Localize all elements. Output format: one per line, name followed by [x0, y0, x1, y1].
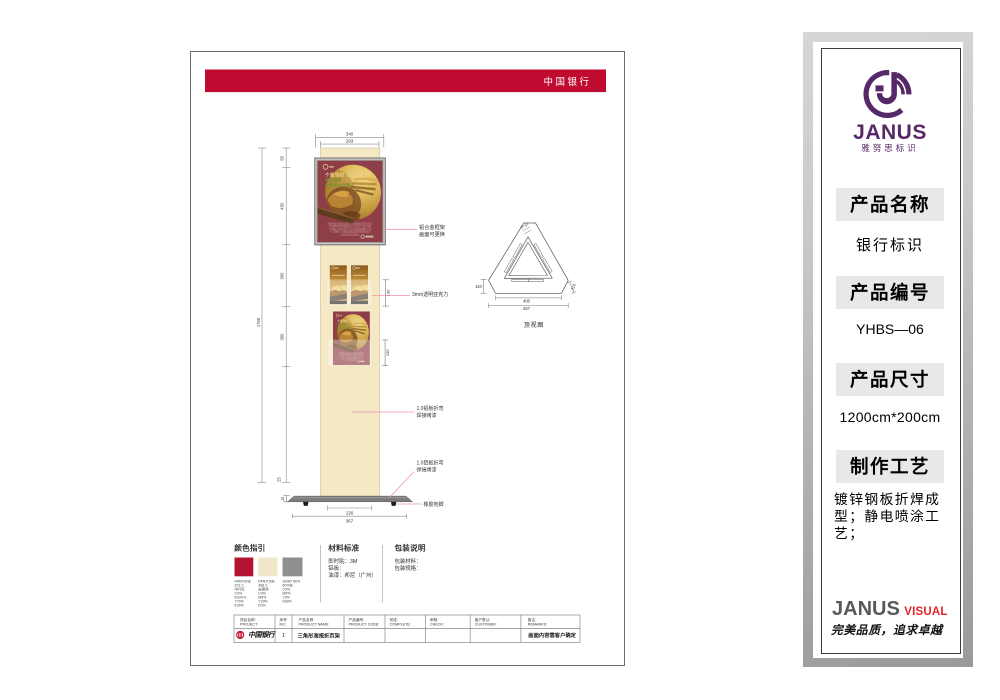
svg-text:材料标准: 材料标准: [327, 542, 359, 552]
svg-text:367: 367: [346, 518, 354, 523]
svg-text:1: 1: [282, 632, 285, 638]
svg-text:367: 367: [523, 306, 531, 311]
svg-text:中国银行: 中国银行: [543, 76, 591, 88]
svg-text:包装说明: 包装说明: [395, 542, 426, 552]
svg-text:300: 300: [280, 332, 285, 340]
svg-text:CHECK:: CHECK:: [430, 622, 444, 626]
svg-text:橡胶地脚: 橡胶地脚: [424, 500, 444, 507]
svg-text:1760: 1760: [256, 317, 261, 327]
svg-text:焊接烤漆: 焊接烤漆: [417, 412, 437, 419]
svg-text:包装规格：: 包装规格：: [395, 564, 422, 572]
svg-text:包装材料：: 包装材料：: [395, 557, 422, 565]
svg-text:焊接烤漆: 焊接烤漆: [417, 466, 437, 473]
svg-text:25: 25: [277, 476, 282, 481]
svg-text:300: 300: [280, 271, 285, 279]
svg-text:110: 110: [475, 283, 482, 288]
svg-text:画面内容需客户确定: 画面内容需客户确定: [528, 631, 576, 639]
svg-text:K30%: K30%: [235, 603, 244, 607]
svg-text:CUSTOMER:: CUSTOMER:: [475, 622, 497, 626]
svg-text:铝合金框架: 铝合金框架: [419, 222, 445, 230]
svg-text:完成:: 完成:: [390, 617, 398, 622]
svg-text:130: 130: [385, 348, 390, 355]
svg-text:PRODUCT NAME:: PRODUCT NAME:: [299, 622, 330, 626]
svg-text:K0%: K0%: [258, 603, 265, 607]
svg-text:产品编号:: 产品编号:: [349, 617, 365, 622]
svg-text:220: 220: [346, 510, 354, 515]
svg-text:430: 430: [280, 202, 285, 210]
svg-text:25: 25: [281, 496, 285, 500]
svg-text:中国银行: 中国银行: [248, 630, 277, 639]
svg-text:铝板：: 铝板：: [328, 564, 344, 572]
svg-text:PRODUCT CODE:: PRODUCT CODE:: [349, 622, 380, 626]
svg-text:审核:: 审核:: [430, 617, 438, 622]
svg-text:项目名称:: 项目名称:: [240, 617, 256, 622]
svg-text:110: 110: [569, 282, 577, 291]
svg-text:1.0铝板折弯: 1.0铝板折弯: [417, 405, 444, 412]
svg-text:PROJECT:: PROJECT:: [240, 622, 258, 626]
svg-text:K60%: K60%: [283, 599, 292, 603]
svg-text:客户签认:: 客户签认:: [475, 617, 491, 622]
svg-text:三角形海报折页架: 三角形海报折页架: [298, 631, 341, 639]
svg-text:备注:: 备注:: [528, 617, 536, 622]
svg-text:油漆：邦尼（广州）: 油漆：邦尼（广州）: [328, 571, 377, 579]
svg-text:50: 50: [280, 155, 285, 160]
svg-text:顶视图: 顶视图: [524, 321, 544, 329]
svg-text:1.0铝板折弯: 1.0铝板折弯: [417, 459, 444, 466]
svg-text:产品名称:: 产品名称:: [299, 617, 315, 622]
svg-text:400: 400: [523, 298, 531, 303]
svg-text:画面可更换: 画面可更换: [419, 230, 446, 238]
svg-text:293: 293: [346, 138, 354, 143]
svg-text:NO.:: NO.:: [280, 622, 288, 626]
svg-text:340: 340: [346, 131, 354, 136]
svg-text:REMARKS:: REMARKS:: [528, 622, 547, 626]
svg-text:即时贴：3M: 即时贴：3M: [328, 557, 358, 565]
svg-text:序号: 序号: [280, 617, 288, 622]
svg-text:COMPLETE:: COMPLETE:: [390, 622, 411, 626]
svg-text:颜色指引: 颜色指引: [234, 542, 265, 552]
svg-text:3mm透明亚克力: 3mm透明亚克力: [412, 290, 448, 297]
